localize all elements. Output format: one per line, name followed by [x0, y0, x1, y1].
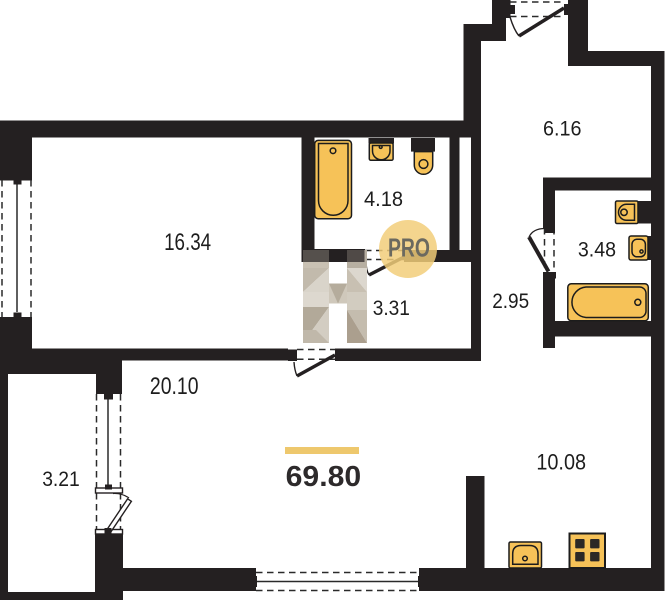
svg-text:16.34: 16.34 [164, 229, 211, 256]
svg-text:6.16: 6.16 [543, 118, 582, 141]
svg-text:PRO: PRO [388, 233, 430, 263]
svg-text:3.21: 3.21 [42, 468, 80, 491]
svg-text:3.48: 3.48 [578, 238, 616, 261]
svg-text:69.80: 69.80 [286, 461, 362, 493]
svg-text:4.18: 4.18 [364, 188, 403, 211]
svg-text:2.95: 2.95 [492, 290, 529, 313]
svg-text:3.31: 3.31 [373, 297, 410, 320]
svg-text:20.10: 20.10 [150, 373, 199, 400]
svg-text:10.08: 10.08 [536, 450, 586, 475]
